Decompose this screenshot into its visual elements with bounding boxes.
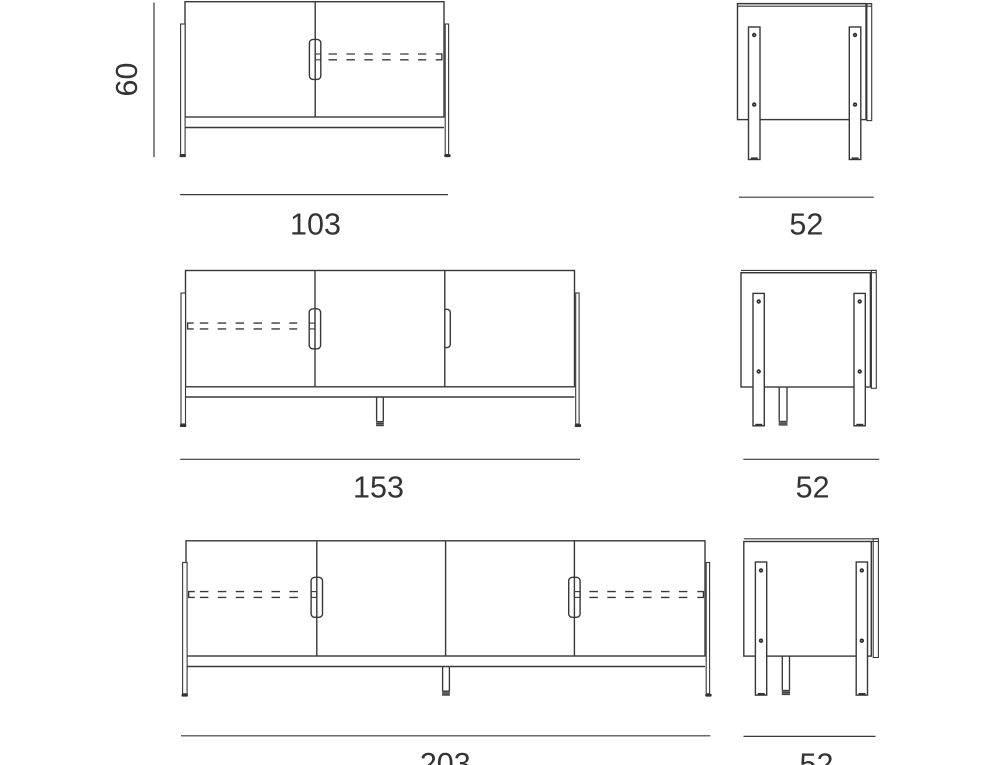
svg-text:52: 52 <box>796 471 830 505</box>
svg-text:52: 52 <box>789 208 823 242</box>
svg-text:203: 203 <box>420 747 471 765</box>
svg-text:153: 153 <box>353 471 404 505</box>
svg-text:60: 60 <box>110 63 144 97</box>
svg-text:103: 103 <box>290 207 341 241</box>
svg-text:52: 52 <box>800 747 834 765</box>
